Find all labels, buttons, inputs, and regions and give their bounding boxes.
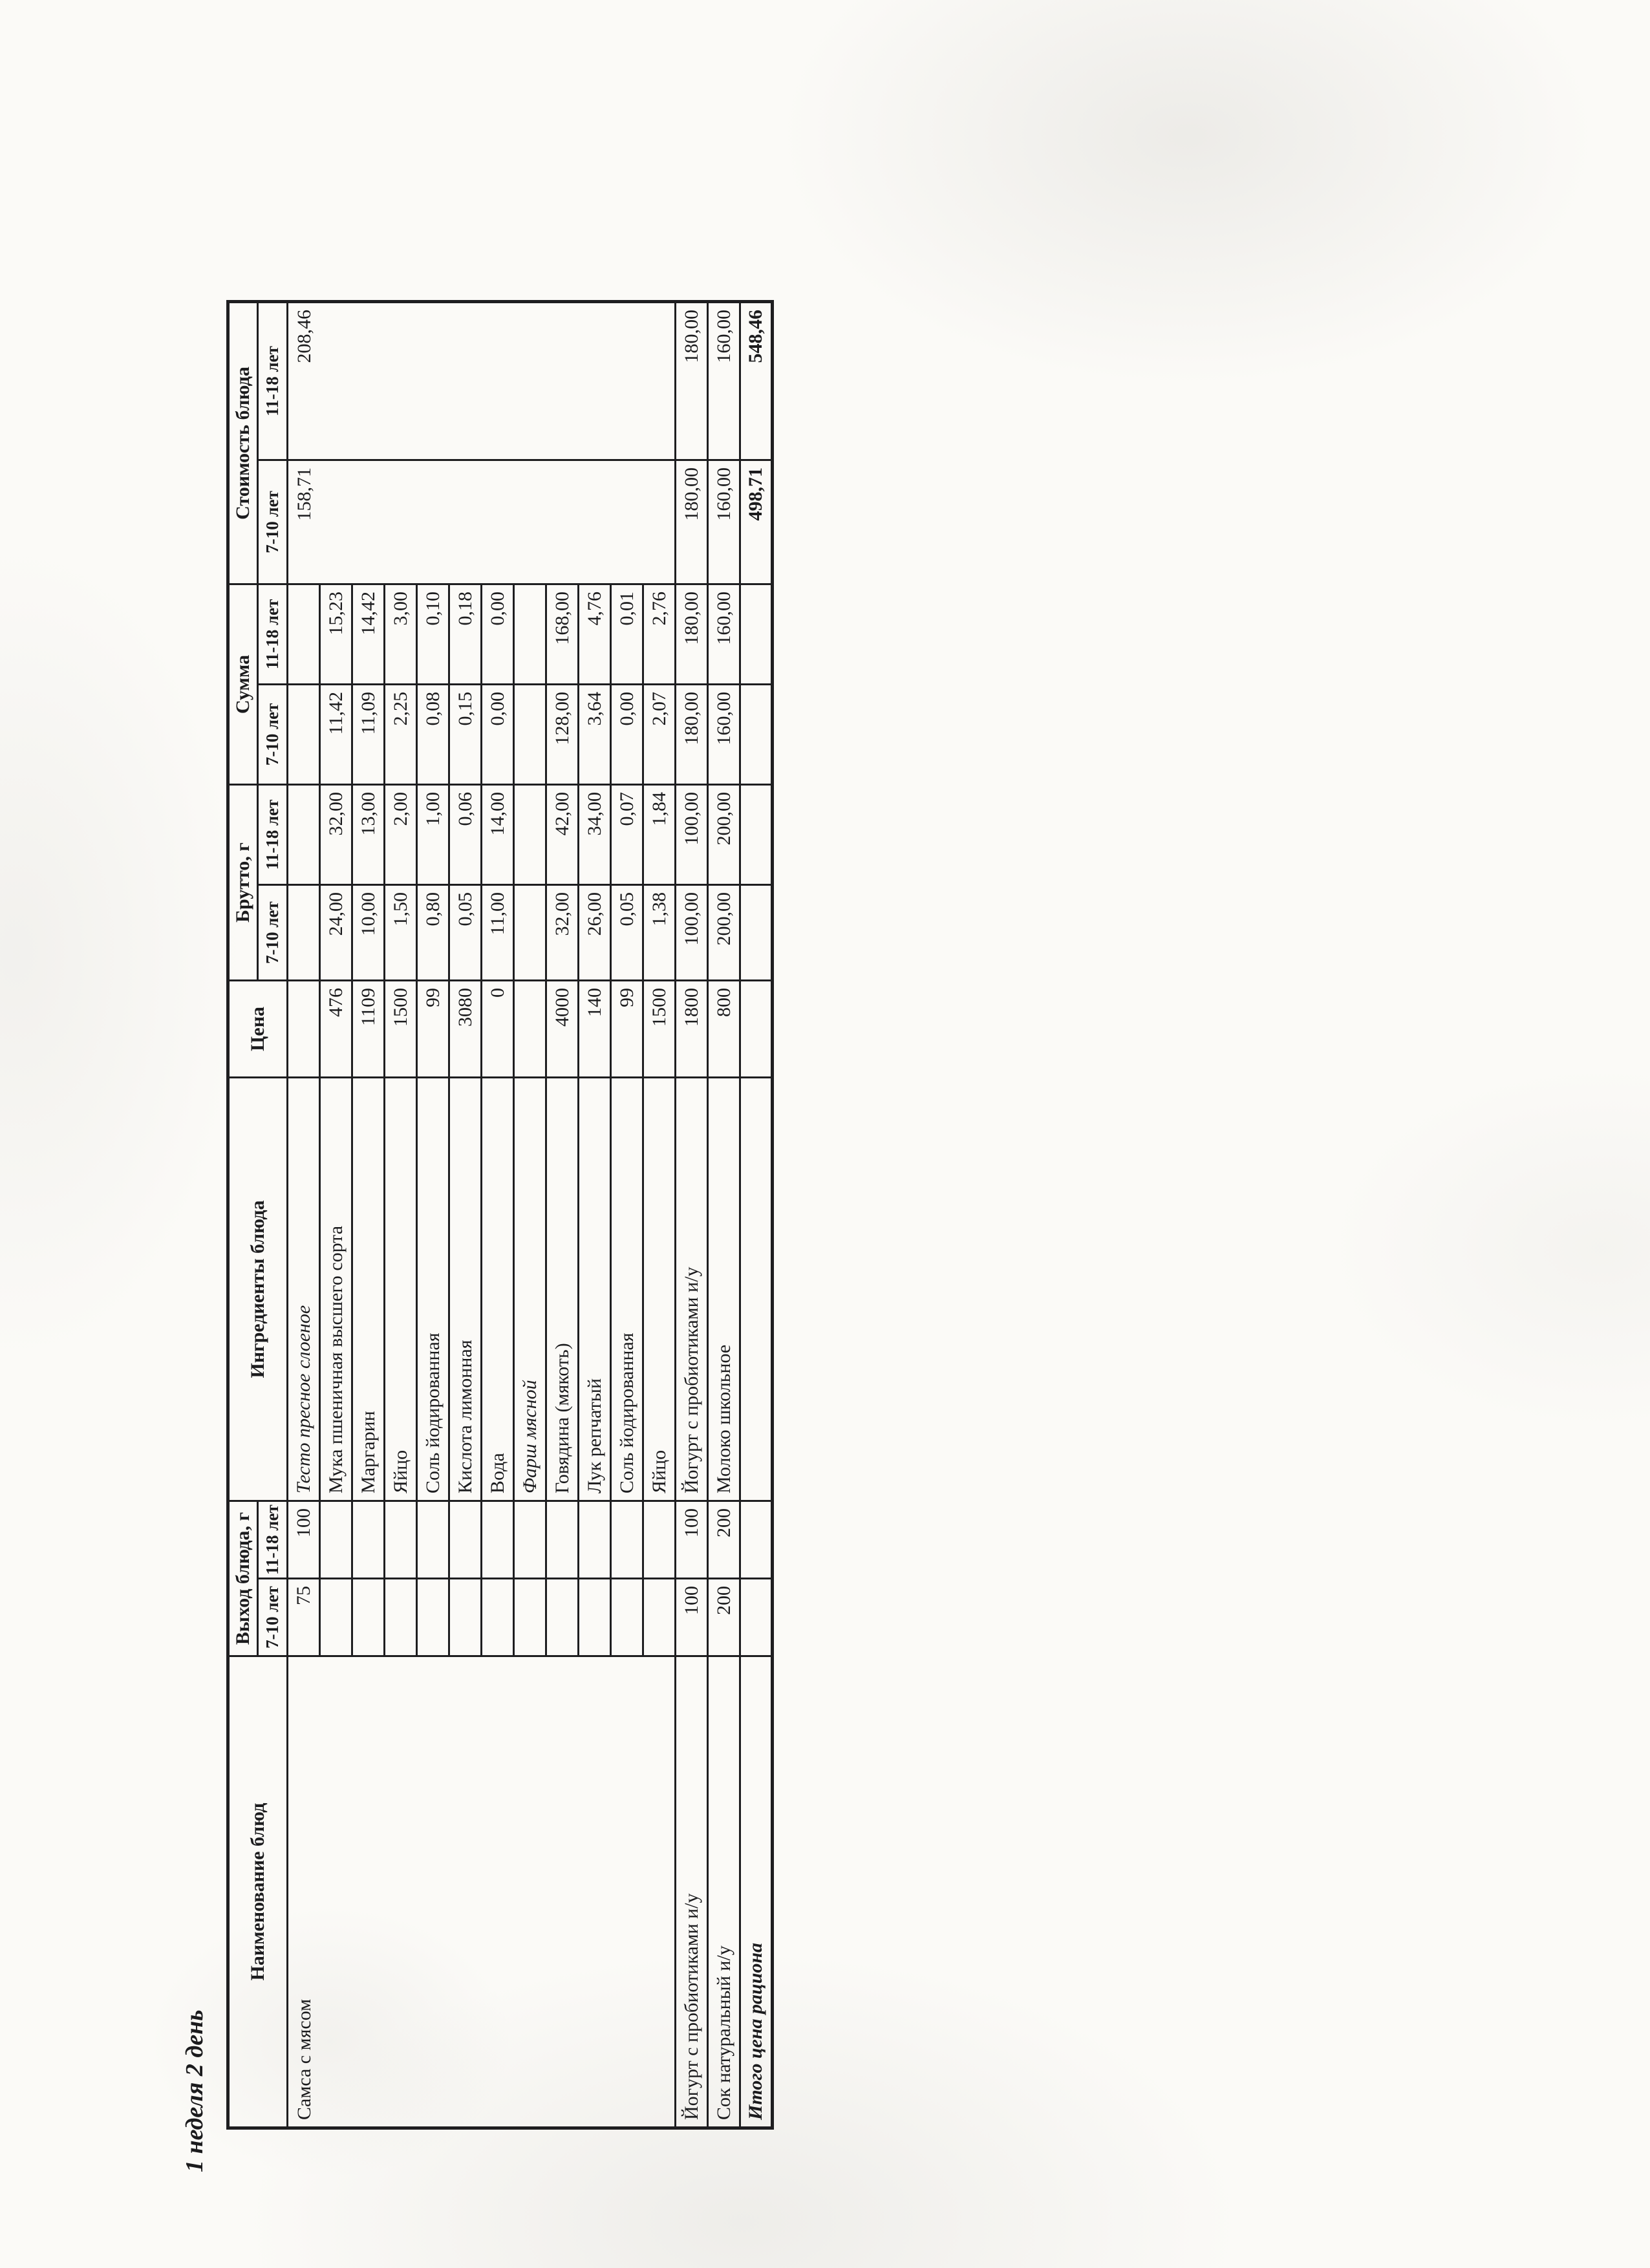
table-cell: 34,00 <box>579 784 611 884</box>
total-label-cell: Итого цена рациона <box>740 1656 773 2128</box>
table-cell: 476 <box>320 980 352 1077</box>
col-header-sum-age-7-10: 7-10 лет <box>258 684 288 784</box>
table-cell: 100,00 <box>676 784 708 884</box>
table-row: Сок натуральный и/у200200Молоко школьное… <box>708 301 740 2128</box>
table-cell: 160,00 <box>708 584 740 684</box>
table-cell <box>449 1579 482 1656</box>
table-cell <box>320 1579 352 1656</box>
table-cell: 1500 <box>385 980 417 1077</box>
scanned-page: { "document": { "title": "1 неделя 2 ден… <box>0 0 1650 2268</box>
table-cell: 2,07 <box>643 684 676 784</box>
col-header-gross-age-11-18: 11-18 лет <box>258 784 288 884</box>
table-row: Самса с мясом75100Тесто пресное слоеное1… <box>288 301 320 2128</box>
table-cell <box>546 1579 579 1656</box>
table-cell <box>514 884 546 980</box>
table-cell <box>740 884 773 980</box>
table-cell: 100,00 <box>676 884 708 980</box>
table-cell: 10,00 <box>352 884 385 980</box>
table-cell: 0,00 <box>611 684 643 784</box>
dish-cost-cell: 180,00 <box>676 301 708 460</box>
table-cell <box>482 1579 514 1656</box>
col-header-price: Цена <box>228 980 288 1077</box>
table-cell: 4000 <box>546 980 579 1077</box>
table-cell <box>352 1579 385 1656</box>
dish-cost-cell: 180,00 <box>676 460 708 584</box>
table-cell: 11,42 <box>320 684 352 784</box>
table-cell: 0,80 <box>417 884 449 980</box>
table-cell: 99 <box>611 980 643 1077</box>
ingredient-cell: Лук репчатый <box>579 1077 611 1501</box>
col-header-yield-age-7-10: 7-10 лет <box>258 1579 288 1656</box>
col-header-gross: Брутто, г <box>228 784 258 980</box>
col-header-cost: Стоимость блюда <box>228 301 258 584</box>
table-cell: 15,23 <box>320 584 352 684</box>
table-cell: 3080 <box>449 980 482 1077</box>
menu-table-body: Самса с мясом75100Тесто пресное слоеное1… <box>288 301 773 2128</box>
table-cell: 100 <box>288 1501 320 1578</box>
table-cell: 200,00 <box>708 784 740 884</box>
ingredient-cell: Маргарин <box>352 1077 385 1501</box>
table-cell <box>514 684 546 784</box>
ingredient-cell: Мука пшеничная высшего сорта <box>320 1077 352 1501</box>
table-cell: 2,00 <box>385 784 417 884</box>
table-cell: 75 <box>288 1579 320 1656</box>
ingredient-cell: Говядина (мякоть) <box>546 1077 579 1501</box>
table-cell <box>514 980 546 1077</box>
table-row: Йогурт с пробиотиками и/у100100Йогурт с … <box>676 301 708 2128</box>
table-cell <box>288 980 320 1077</box>
table-cell <box>643 1501 676 1578</box>
table-cell: 4,76 <box>579 584 611 684</box>
table-cell <box>740 1501 773 1578</box>
table-cell <box>482 1501 514 1578</box>
table-cell: 800 <box>708 980 740 1077</box>
table-cell <box>740 584 773 684</box>
table-cell: 3,64 <box>579 684 611 784</box>
dish-name-cell: Сок натуральный и/у <box>708 1656 740 2128</box>
table-cell: 3,00 <box>385 584 417 684</box>
table-cell: 1,00 <box>417 784 449 884</box>
table-cell <box>579 1501 611 1578</box>
dish-name-cell: Йогурт с пробиотиками и/у <box>676 1656 708 2128</box>
table-cell: 14,42 <box>352 584 385 684</box>
table-cell: 160,00 <box>708 684 740 784</box>
table-cell <box>740 784 773 884</box>
menu-table-head: Наименование блюд Выход блюда, г Ингреди… <box>228 301 288 2128</box>
table-cell <box>740 1077 773 1501</box>
total-cost-cell: 498,71 <box>740 460 773 584</box>
table-cell: 100 <box>676 1501 708 1578</box>
table-cell <box>643 1579 676 1656</box>
table-cell: 0,10 <box>417 584 449 684</box>
table-cell: 99 <box>417 980 449 1077</box>
table-cell: 180,00 <box>676 584 708 684</box>
table-cell: 100 <box>676 1579 708 1656</box>
table-cell <box>288 784 320 884</box>
ingredient-cell: Яйцо <box>385 1077 417 1501</box>
total-cost-cell: 548,46 <box>740 301 773 460</box>
table-row: Итого цена рациона498,71548,46 <box>740 301 773 2128</box>
ingredient-cell: Вода <box>482 1077 514 1501</box>
document-title: 1 неделя 2 день <box>172 303 226 2172</box>
col-header-yield-age-11-18: 11-18 лет <box>258 1501 288 1578</box>
col-header-cost-age-11-18: 11-18 лет <box>258 301 288 460</box>
table-cell: 13,00 <box>352 784 385 884</box>
table-cell <box>385 1501 417 1578</box>
header-row-groups: Наименование блюд Выход блюда, г Ингреди… <box>228 301 258 2128</box>
dish-cost-cell: 208,46 <box>288 301 676 460</box>
table-cell: 140 <box>579 980 611 1077</box>
table-cell: 32,00 <box>320 784 352 884</box>
col-header-cost-age-7-10: 7-10 лет <box>258 460 288 584</box>
table-cell <box>288 684 320 784</box>
table-cell: 200,00 <box>708 884 740 980</box>
dish-cost-cell: 160,00 <box>708 301 740 460</box>
table-cell <box>740 1579 773 1656</box>
ingredient-cell: Соль йодированная <box>611 1077 643 1501</box>
table-cell: 0 <box>482 980 514 1077</box>
table-cell: 200 <box>708 1501 740 1578</box>
table-cell: 200 <box>708 1579 740 1656</box>
table-cell: 0,05 <box>611 884 643 980</box>
table-cell: 32,00 <box>546 884 579 980</box>
table-cell <box>514 784 546 884</box>
table-cell <box>546 1501 579 1578</box>
table-cell: 11,00 <box>482 884 514 980</box>
ingredient-cell: Молоко школьное <box>708 1077 740 1501</box>
table-cell: 1,38 <box>643 884 676 980</box>
table-cell <box>611 1501 643 1578</box>
table-cell <box>514 1501 546 1578</box>
table-cell <box>352 1501 385 1578</box>
table-cell <box>288 584 320 684</box>
table-cell <box>740 980 773 1077</box>
table-cell: 0,08 <box>417 684 449 784</box>
rotated-table-sheet: 1 неделя 2 день Наименование блюд Выход … <box>172 303 774 2130</box>
table-cell: 0,05 <box>449 884 482 980</box>
table-cell: 180,00 <box>676 684 708 784</box>
table-cell: 24,00 <box>320 884 352 980</box>
dish-cost-cell: 158,71 <box>288 460 676 584</box>
table-cell <box>611 1579 643 1656</box>
col-header-gross-age-7-10: 7-10 лет <box>258 884 288 980</box>
table-cell <box>288 884 320 980</box>
ingredient-cell: Йогурт с пробиотиками и/у <box>676 1077 708 1501</box>
table-cell: 128,00 <box>546 684 579 784</box>
table-cell <box>385 1579 417 1656</box>
table-cell: 42,00 <box>546 784 579 884</box>
table-cell: 0,00 <box>482 684 514 784</box>
table-cell: 2,25 <box>385 684 417 784</box>
table-cell: 26,00 <box>579 884 611 980</box>
table-cell: 1,84 <box>643 784 676 884</box>
col-header-dish-name: Наименование блюд <box>228 1656 288 2128</box>
table-cell: 1109 <box>352 980 385 1077</box>
table-cell: 14,00 <box>482 784 514 884</box>
table-cell: 0,00 <box>482 584 514 684</box>
table-cell: 1,50 <box>385 884 417 980</box>
table-cell: 1800 <box>676 980 708 1077</box>
ingredient-group-cell: Фарш мясной <box>514 1077 546 1501</box>
ingredient-group-cell: Тесто пресное слоеное <box>288 1077 320 1501</box>
table-cell <box>579 1579 611 1656</box>
table-cell: 0,01 <box>611 584 643 684</box>
col-header-sum: Сумма <box>228 584 258 784</box>
table-cell: 168,00 <box>546 584 579 684</box>
ingredient-cell: Соль йодированная <box>417 1077 449 1501</box>
table-cell <box>417 1579 449 1656</box>
table-cell: 0,07 <box>611 784 643 884</box>
table-cell: 0,18 <box>449 584 482 684</box>
col-header-yield: Выход блюда, г <box>228 1501 258 1656</box>
ingredient-cell: Яйцо <box>643 1077 676 1501</box>
col-header-sum-age-11-18: 11-18 лет <box>258 584 288 684</box>
dish-cost-cell: 160,00 <box>708 460 740 584</box>
table-cell <box>740 684 773 784</box>
table-cell: 11,09 <box>352 684 385 784</box>
menu-cost-table: Наименование блюд Выход блюда, г Ингреди… <box>226 300 774 2130</box>
dish-name-cell: Самса с мясом <box>288 1656 676 2128</box>
table-cell <box>320 1501 352 1578</box>
table-cell <box>417 1501 449 1578</box>
table-cell <box>514 584 546 684</box>
table-cell: 2,76 <box>643 584 676 684</box>
ingredient-cell: Кислота лимонная <box>449 1077 482 1501</box>
table-cell: 0,15 <box>449 684 482 784</box>
table-cell <box>449 1501 482 1578</box>
table-cell <box>514 1579 546 1656</box>
col-header-ingredients: Ингредиенты блюда <box>228 1077 288 1501</box>
table-cell: 0,06 <box>449 784 482 884</box>
table-cell: 1500 <box>643 980 676 1077</box>
